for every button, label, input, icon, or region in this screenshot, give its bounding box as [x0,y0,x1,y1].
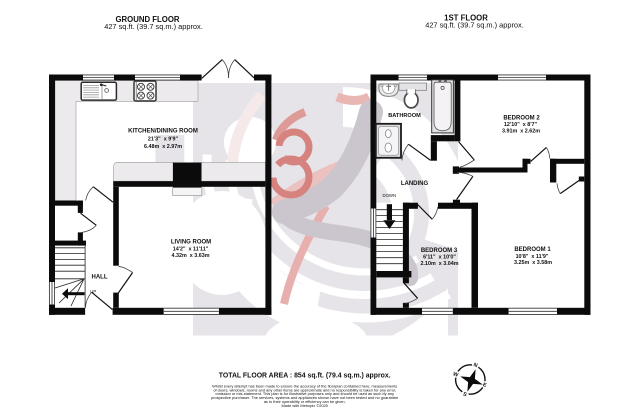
svg-text:12'10" x 8'7": 12'10" x 8'7" [504,122,538,128]
svg-text:2.10m x 3.04m: 2.10m x 3.04m [420,261,458,267]
svg-text:3.91m x 2.62m: 3.91m x 2.62m [502,129,540,135]
svg-text:KITCHEN/DINING ROOM: KITCHEN/DINING ROOM [128,128,198,134]
svg-text:BEDROOM 2: BEDROOM 2 [503,116,540,122]
svg-text:14'2" x 11'11": 14'2" x 11'11" [173,246,209,252]
svg-text:TOTAL FLOOR AREA : 854 sq.ft.: TOTAL FLOOR AREA : 854 sq.ft. (79.4 sq.m… [219,373,391,380]
svg-text:Made with Metropix ©2025: Made with Metropix ©2025 [282,403,328,408]
svg-text:21'3" x 9'9": 21'3" x 9'9" [148,136,179,142]
svg-text:UP: UP [90,289,96,294]
svg-text:4.32m x 3.63m: 4.32m x 3.63m [171,253,209,259]
svg-text:LANDING: LANDING [401,181,429,187]
svg-text:6.48m x 2.97m: 6.48m x 2.97m [144,144,182,150]
svg-text:DOWN: DOWN [382,193,396,198]
svg-text:BEDROOM 1: BEDROOM 1 [514,247,551,253]
svg-text:3.25m x 3.58m: 3.25m x 3.58m [514,260,552,266]
svg-text:BATHROOM: BATHROOM [388,113,421,119]
svg-text:HALL: HALL [92,275,108,281]
svg-text:427 sq.ft. (39.7 sq.m.) approx: 427 sq.ft. (39.7 sq.m.) approx. [104,22,203,31]
svg-text:BEDROOM 3: BEDROOM 3 [421,248,458,254]
svg-text:427 sq.ft. (39.7 sq.m.) approx: 427 sq.ft. (39.7 sq.m.) approx. [425,21,524,30]
svg-text:LIVING ROOM: LIVING ROOM [171,240,211,246]
svg-text:6'11" x 10'0": 6'11" x 10'0" [423,254,456,260]
svg-text:10'8" x 11'9": 10'8" x 11'9" [516,254,549,260]
